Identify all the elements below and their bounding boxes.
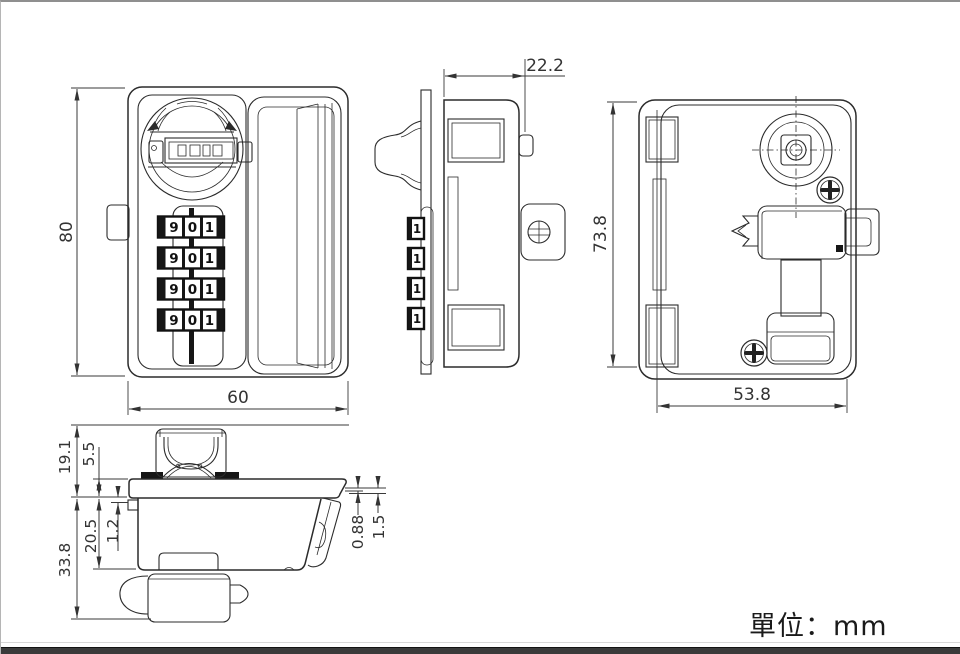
lower-right-nub bbox=[230, 585, 248, 603]
dim-label-20-5: 20.5 bbox=[82, 519, 100, 554]
back-latch bbox=[732, 206, 879, 259]
dim-label-5-5: 5.5 bbox=[80, 442, 98, 467]
combination-dial bbox=[141, 98, 252, 200]
back-slider-track bbox=[781, 260, 821, 316]
bottom-knob bbox=[156, 429, 226, 477]
latch-keeper bbox=[845, 209, 879, 255]
bottom-view: 19.1 5.5 33.8 20.5 1.2 bbox=[56, 425, 388, 622]
dial-display-window bbox=[165, 138, 237, 163]
dim-label-33-8: 33.8 bbox=[56, 543, 74, 578]
dial-lower-arc bbox=[161, 162, 223, 177]
front-mount-tab bbox=[107, 205, 129, 240]
dim-label-53-8: 53.8 bbox=[733, 385, 771, 405]
code-wheel-row: 9 0 1 bbox=[158, 279, 224, 300]
wheel-digit[interactable]: 1 bbox=[413, 252, 421, 266]
code-wheel-row: 9 0 1 bbox=[158, 310, 224, 331]
flange-pad-left bbox=[141, 472, 163, 479]
wheel-digit[interactable]: 0 bbox=[188, 220, 197, 236]
footer-bar bbox=[1, 647, 960, 654]
side-view: 1 1 1 1 22.2 bbox=[375, 56, 565, 374]
wheel-digit[interactable]: 1 bbox=[205, 313, 214, 329]
wheel-digit[interactable]: 0 bbox=[188, 251, 197, 267]
side-bolt-top bbox=[448, 119, 504, 162]
phillips-screw-bottom bbox=[741, 340, 767, 366]
side-bolt-bottom bbox=[448, 305, 504, 350]
dim-bottom-flange-lip: 1.2 bbox=[104, 491, 128, 551]
footer-divider bbox=[1, 642, 960, 643]
drawing-page: 9 0 1 9 0 1 9 0 1 bbox=[0, 0, 960, 654]
wheel-digit[interactable]: 9 bbox=[169, 251, 178, 267]
bottom-housing-bump bbox=[159, 553, 218, 570]
dim-label-1-5: 1.5 bbox=[370, 515, 388, 540]
dim-label-22-2: 22.2 bbox=[526, 56, 564, 76]
side-nub bbox=[519, 135, 533, 156]
dial-lock-tab-right bbox=[238, 142, 252, 162]
bottom-flange bbox=[129, 479, 346, 498]
back-plate bbox=[661, 105, 851, 374]
wheel-digit[interactable]: 9 bbox=[169, 313, 178, 329]
side-latch-plate bbox=[521, 204, 565, 260]
wheel-digit[interactable]: 1 bbox=[205, 220, 214, 236]
wheel-digit[interactable]: 1 bbox=[413, 312, 421, 326]
wheel-digit[interactable]: 1 bbox=[413, 222, 421, 236]
bottom-body bbox=[138, 498, 321, 570]
dim-label-80: 80 bbox=[57, 221, 77, 243]
side-body bbox=[444, 100, 519, 367]
wheel-digit[interactable]: 9 bbox=[169, 282, 178, 298]
dim-label-19-1: 19.1 bbox=[56, 440, 74, 475]
wheel-digit[interactable]: 0 bbox=[188, 313, 197, 329]
dim-front-width: 60 bbox=[128, 381, 348, 415]
dim-bottom-knob-offset: 5.5 bbox=[80, 442, 128, 496]
back-cam bbox=[752, 96, 840, 218]
bottom-side-tab bbox=[128, 500, 138, 510]
flange-pad-right bbox=[215, 472, 239, 479]
wheel-digit[interactable]: 9 bbox=[169, 220, 178, 236]
wheel-digit[interactable]: 1 bbox=[205, 282, 214, 298]
front-handle-recess bbox=[248, 97, 341, 374]
dim-back-width: 53.8 bbox=[657, 374, 847, 413]
latch-spring-clip bbox=[732, 216, 758, 246]
dim-label-60: 60 bbox=[227, 388, 249, 408]
dim-bottom-total-height: 33.8 bbox=[56, 499, 151, 619]
back-rail-top-block bbox=[646, 117, 678, 162]
code-wheel-row: 9 0 1 bbox=[158, 248, 224, 269]
dial-window-marks bbox=[178, 145, 222, 156]
code-wheel-row: 9 0 1 bbox=[158, 217, 224, 238]
wheel-digit[interactable]: 0 bbox=[188, 282, 197, 298]
lower-left-lobe bbox=[120, 576, 148, 614]
dim-back-height: 73.8 bbox=[591, 102, 637, 367]
dim-front-height: 80 bbox=[57, 88, 125, 376]
back-bottom-block bbox=[767, 313, 834, 364]
phillips-screw-top bbox=[817, 177, 843, 203]
back-outline bbox=[639, 100, 856, 379]
wheel-digit[interactable]: 1 bbox=[413, 282, 421, 296]
dial-lock-tab-left bbox=[149, 141, 163, 163]
unit-label: 單位：mm bbox=[749, 604, 888, 643]
bottom-lower-assembly bbox=[120, 574, 248, 622]
side-slot bbox=[448, 177, 458, 290]
wheel-digit[interactable]: 1 bbox=[205, 251, 214, 267]
dim-label-73-8: 73.8 bbox=[591, 215, 611, 253]
side-knob bbox=[375, 121, 421, 190]
code-wheel-assembly: 9 0 1 9 0 1 9 0 1 bbox=[158, 206, 224, 366]
dim-label-1-2: 1.2 bbox=[104, 519, 122, 544]
back-rail-slot bbox=[653, 179, 666, 290]
back-rail-bottom-block bbox=[646, 305, 678, 367]
front-view: 9 0 1 9 0 1 9 0 1 bbox=[57, 87, 348, 415]
back-view: 73.8 53.8 bbox=[591, 96, 879, 413]
dim-label-0-88: 0.88 bbox=[349, 515, 367, 550]
drawing-canvas: 9 0 1 9 0 1 9 0 1 bbox=[1, 2, 960, 654]
